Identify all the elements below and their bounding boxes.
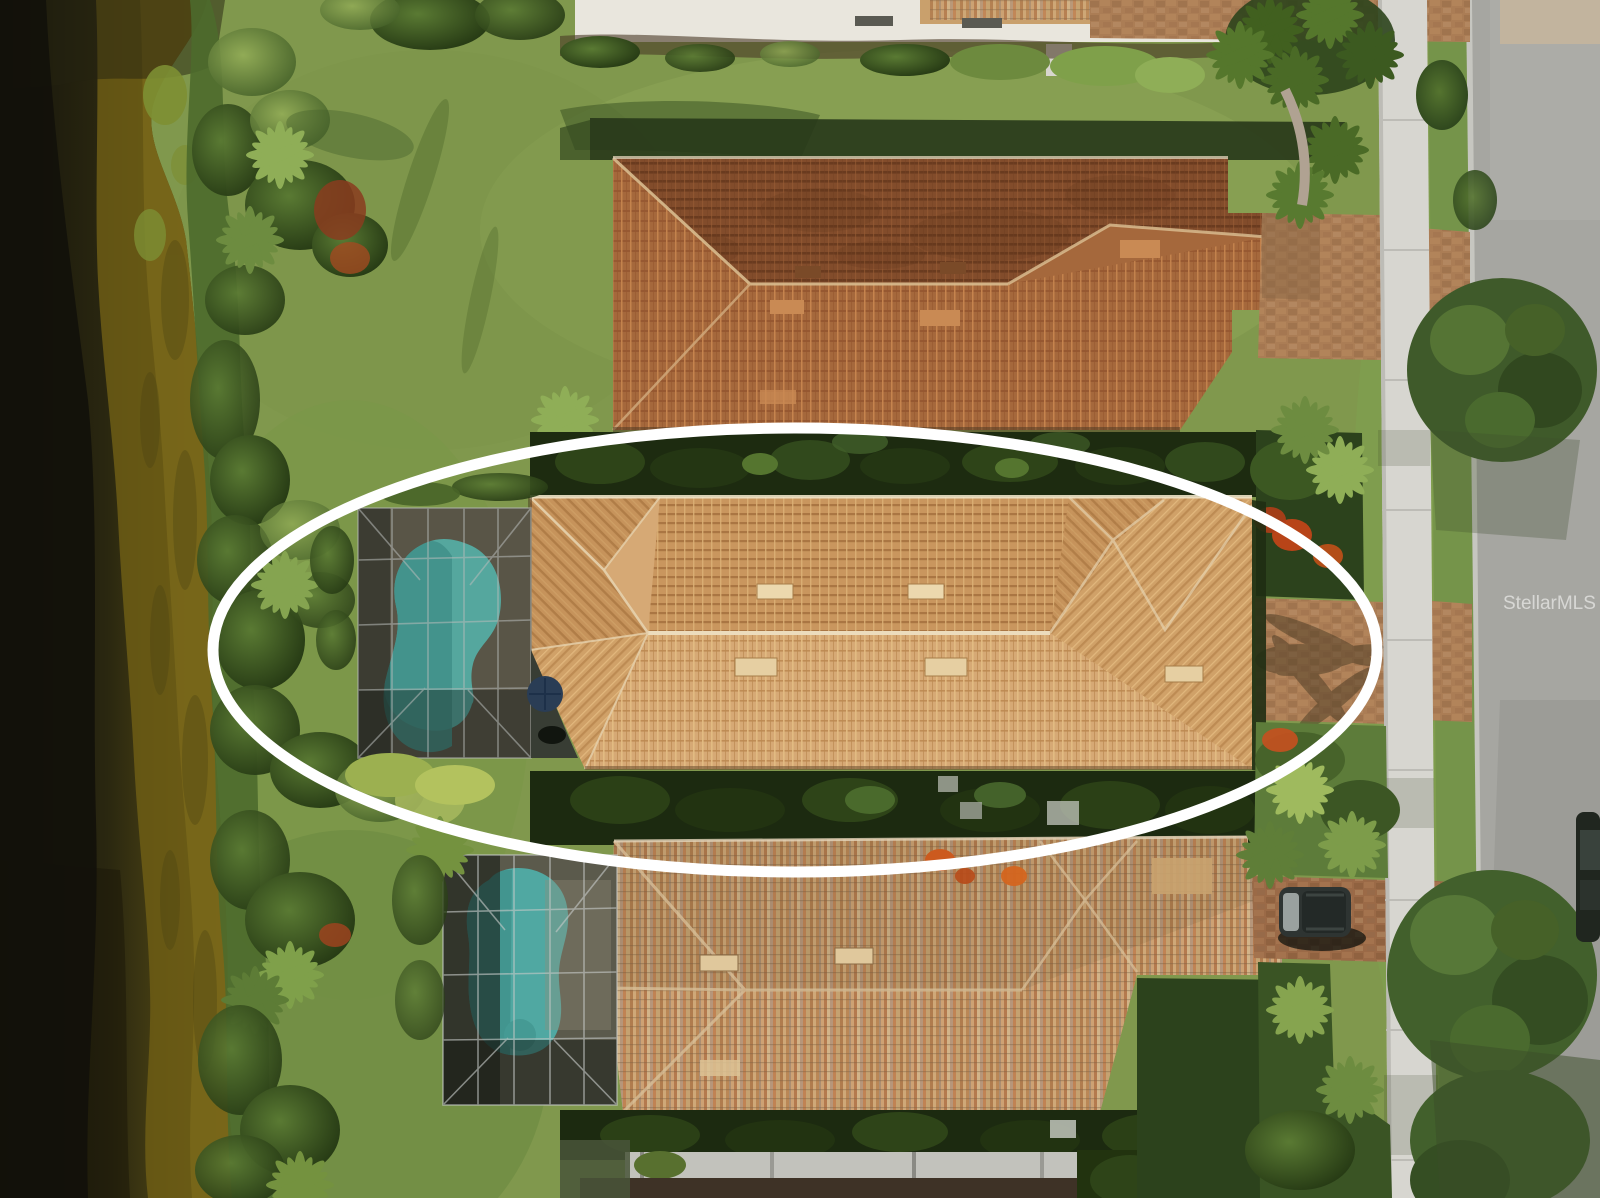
svg-text:StellarMLS: StellarMLS	[1503, 593, 1596, 614]
